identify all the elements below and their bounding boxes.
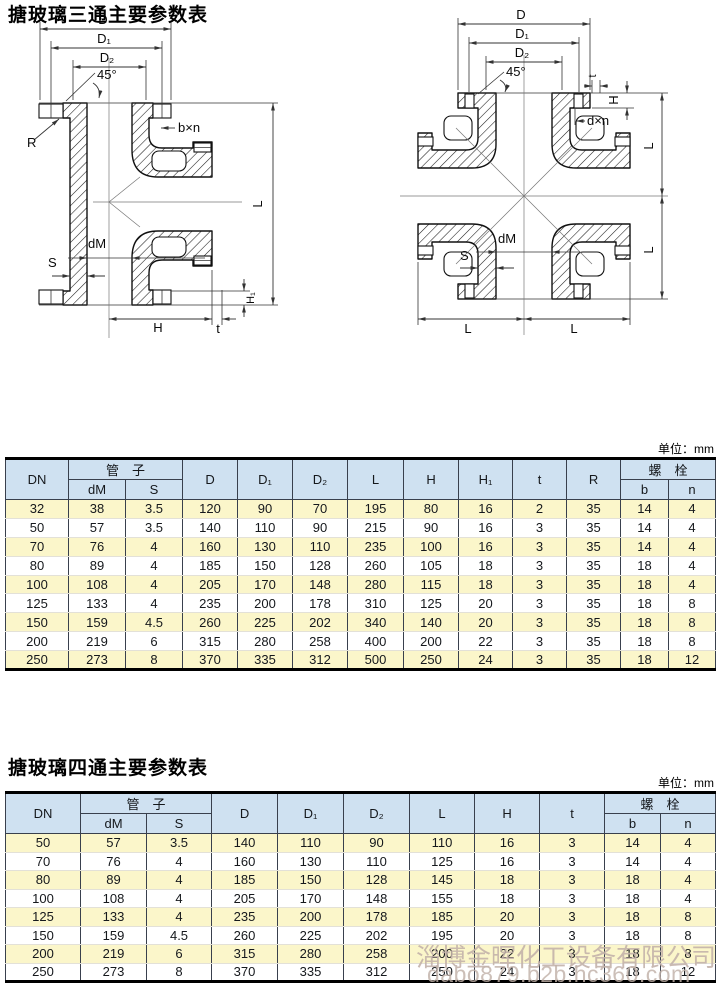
table-cell: 125 bbox=[6, 594, 69, 613]
table-cell: 8 bbox=[661, 908, 716, 927]
table-cell: 18 bbox=[621, 556, 669, 575]
table-cell: 185 bbox=[183, 556, 238, 575]
table-cell: 280 bbox=[238, 632, 293, 651]
table-cell: 273 bbox=[81, 963, 147, 982]
table-cell: 170 bbox=[238, 575, 293, 594]
table-cell: 4 bbox=[126, 537, 183, 556]
table-cell: 315 bbox=[183, 632, 238, 651]
table-cell: 4 bbox=[669, 500, 716, 519]
table-cell: 89 bbox=[69, 556, 126, 575]
column-header-dn: DN bbox=[6, 793, 81, 834]
table-cell: 90 bbox=[344, 834, 410, 853]
table-cell: 4 bbox=[661, 852, 716, 871]
table-cell: 8 bbox=[147, 963, 212, 982]
column-header-d2: D₂ bbox=[344, 793, 410, 834]
table-cell: 155 bbox=[410, 889, 475, 908]
table-cell: 35 bbox=[567, 556, 621, 575]
table-row: 8089418515012826010518335184 bbox=[6, 556, 716, 575]
table-cell: 18 bbox=[605, 908, 661, 927]
table-cell: 280 bbox=[278, 945, 344, 964]
table-cell: 4.5 bbox=[126, 613, 183, 632]
column-header-dm: dM bbox=[69, 480, 126, 500]
table-cell: 200 bbox=[238, 594, 293, 613]
table-cell: 4 bbox=[147, 889, 212, 908]
column-header-pipe-group: 管 子 bbox=[81, 793, 212, 814]
table-cell: 4 bbox=[669, 537, 716, 556]
table-cell: 205 bbox=[183, 575, 238, 594]
table-cell: 8 bbox=[669, 594, 716, 613]
table-cell: 202 bbox=[293, 613, 348, 632]
table-cell: 90 bbox=[404, 518, 459, 537]
table-cell: 3 bbox=[540, 908, 605, 927]
table-cell: 76 bbox=[69, 537, 126, 556]
table-cell: 235 bbox=[183, 594, 238, 613]
table-cell: 70 bbox=[6, 537, 69, 556]
table-cell: 3 bbox=[513, 651, 567, 670]
table-cell: 250 bbox=[6, 963, 81, 982]
tee-label-angle: 45° bbox=[97, 67, 117, 82]
table-cell: 50 bbox=[6, 518, 69, 537]
column-header-n: n bbox=[661, 814, 716, 834]
table-cell: 400 bbox=[348, 632, 404, 651]
cross-label-L-right-top: L bbox=[641, 142, 656, 149]
tee-table-title: 搪玻璃三通主要参数表 bbox=[8, 0, 208, 27]
table-cell: 258 bbox=[293, 632, 348, 651]
cross-label-L-bottom-right: L bbox=[570, 321, 577, 336]
table-cell: 100 bbox=[6, 889, 81, 908]
table-cell: 22 bbox=[459, 632, 513, 651]
column-header-d: D bbox=[212, 793, 278, 834]
table-cell: 4 bbox=[147, 871, 212, 890]
table-cell: 14 bbox=[605, 834, 661, 853]
table-cell: 90 bbox=[293, 518, 348, 537]
table-cell: 120 bbox=[183, 500, 238, 519]
table-cell: 235 bbox=[212, 908, 278, 927]
tee-label-dM: dM bbox=[88, 236, 106, 251]
tee-label-D1: D₁ bbox=[97, 31, 111, 46]
table-cell: 3 bbox=[513, 632, 567, 651]
table-cell: 312 bbox=[344, 963, 410, 982]
table-cell: 335 bbox=[238, 651, 293, 670]
table-cell: 4 bbox=[126, 556, 183, 575]
table-cell: 14 bbox=[621, 500, 669, 519]
column-header-h: H bbox=[475, 793, 540, 834]
column-header-h1: H₁ bbox=[459, 459, 513, 500]
table-cell: 260 bbox=[348, 556, 404, 575]
table-cell: 219 bbox=[69, 632, 126, 651]
table-cell: 20 bbox=[475, 908, 540, 927]
table-cell: 3 bbox=[513, 613, 567, 632]
table-cell: 159 bbox=[69, 613, 126, 632]
table-cell: 14 bbox=[605, 852, 661, 871]
table-cell: 100 bbox=[404, 537, 459, 556]
tee-label-S: S bbox=[48, 255, 57, 270]
table-cell: 3.5 bbox=[126, 500, 183, 519]
column-header-l: L bbox=[410, 793, 475, 834]
table-cell: 125 bbox=[404, 594, 459, 613]
table-cell: 18 bbox=[605, 871, 661, 890]
table-cell: 185 bbox=[410, 908, 475, 927]
table-row: 200219631528025840020022335188 bbox=[6, 632, 716, 651]
table-cell: 219 bbox=[81, 945, 147, 964]
column-header-r: R bbox=[567, 459, 621, 500]
table-cell: 24 bbox=[459, 651, 513, 670]
column-header-bolt-group: 螺 栓 bbox=[605, 793, 716, 814]
column-header-bolt-group: 螺 栓 bbox=[621, 459, 716, 480]
cross-label-H: H bbox=[606, 95, 621, 104]
table-cell: 110 bbox=[344, 852, 410, 871]
cross-label-D: D bbox=[516, 7, 525, 22]
tee-parameters-table: DN 管 子 D D₁ D₂ L H H₁ t R 螺 栓 dM S b n 3… bbox=[5, 457, 716, 671]
table-cell: 4.5 bbox=[147, 926, 212, 945]
table-cell: 335 bbox=[278, 963, 344, 982]
table-cell: 16 bbox=[459, 518, 513, 537]
table-cell: 150 bbox=[6, 926, 81, 945]
tee-label-R: R bbox=[27, 135, 36, 150]
table-cell: 133 bbox=[81, 908, 147, 927]
table-cell: 70 bbox=[6, 852, 81, 871]
table-cell: 70 bbox=[293, 500, 348, 519]
table-cell: 128 bbox=[344, 871, 410, 890]
cross-label-L-bottom-left: L bbox=[464, 321, 471, 336]
table-cell: 8 bbox=[669, 632, 716, 651]
watermark-site-text: dabo879.b2b.hc360.com bbox=[427, 961, 691, 988]
table-cell: 170 bbox=[278, 889, 344, 908]
table-cell: 4 bbox=[126, 575, 183, 594]
tee-label-H1: H₁ bbox=[245, 292, 257, 304]
cross-table-title: 搪玻璃四通主要参数表 bbox=[8, 753, 208, 780]
table-cell: 12 bbox=[669, 651, 716, 670]
table-cell: 133 bbox=[69, 594, 126, 613]
table-cell: 80 bbox=[6, 556, 69, 575]
column-header-dn: DN bbox=[6, 459, 69, 500]
table-cell: 108 bbox=[81, 889, 147, 908]
table-cell: 200 bbox=[6, 945, 81, 964]
table-cell: 3 bbox=[540, 834, 605, 853]
table-row: 125133423520017831012520335188 bbox=[6, 594, 716, 613]
table-cell: 130 bbox=[238, 537, 293, 556]
column-header-t: t bbox=[513, 459, 567, 500]
technical-drawings: D D₁ D₂ 45° R b×n L dM bbox=[0, 0, 720, 352]
table-cell: 315 bbox=[212, 945, 278, 964]
table-row: 80894185150128145183184 bbox=[6, 871, 716, 890]
table-cell: 4 bbox=[669, 575, 716, 594]
table-cell: 260 bbox=[212, 926, 278, 945]
table-cell: 6 bbox=[126, 632, 183, 651]
tee-label-bxn: b×n bbox=[178, 120, 200, 135]
table-row: 70764160130110125163144 bbox=[6, 852, 716, 871]
table-cell: 35 bbox=[567, 651, 621, 670]
column-header-d1: D₁ bbox=[238, 459, 293, 500]
spec-sheet-page: D D₁ D₂ 45° R b×n L dM bbox=[0, 0, 720, 993]
table-cell: 108 bbox=[69, 575, 126, 594]
column-header-d2: D₂ bbox=[293, 459, 348, 500]
table-cell: 200 bbox=[278, 908, 344, 927]
table-cell: 2 bbox=[513, 500, 567, 519]
table-cell: 4 bbox=[669, 556, 716, 575]
column-header-pipe-group: 管 子 bbox=[69, 459, 183, 480]
table-cell: 215 bbox=[348, 518, 404, 537]
column-header-dm: dM bbox=[81, 814, 147, 834]
table-cell: 4 bbox=[669, 518, 716, 537]
tee-label-D2: D₂ bbox=[100, 50, 114, 65]
table-cell: 150 bbox=[6, 613, 69, 632]
table-cell: 35 bbox=[567, 537, 621, 556]
table-row: 32383.512090701958016235144 bbox=[6, 500, 716, 519]
table-cell: 16 bbox=[475, 834, 540, 853]
table-cell: 110 bbox=[410, 834, 475, 853]
cross-label-angle: 45° bbox=[506, 64, 526, 79]
table-cell: 150 bbox=[238, 556, 293, 575]
table-cell: 200 bbox=[404, 632, 459, 651]
table-cell: 340 bbox=[348, 613, 404, 632]
table-cell: 4 bbox=[661, 871, 716, 890]
tee-label-L: L bbox=[250, 200, 265, 207]
table-cell: 35 bbox=[567, 575, 621, 594]
column-header-s: S bbox=[147, 814, 212, 834]
table-cell: 89 bbox=[81, 871, 147, 890]
table-cell: 178 bbox=[344, 908, 410, 927]
column-header-s: S bbox=[126, 480, 183, 500]
table-cell: 50 bbox=[6, 834, 81, 853]
table-cell: 80 bbox=[6, 871, 81, 890]
table-cell: 110 bbox=[278, 834, 344, 853]
table-cell: 140 bbox=[183, 518, 238, 537]
table-cell: 57 bbox=[69, 518, 126, 537]
table-cell: 159 bbox=[81, 926, 147, 945]
table-cell: 3 bbox=[513, 518, 567, 537]
table-cell: 250 bbox=[404, 651, 459, 670]
table-cell: 90 bbox=[238, 500, 293, 519]
table-cell: 8 bbox=[669, 613, 716, 632]
table-cell: 148 bbox=[293, 575, 348, 594]
cross-table-unit-label: 单位：mm bbox=[658, 774, 714, 791]
table-cell: 4 bbox=[661, 834, 716, 853]
table-cell: 35 bbox=[567, 594, 621, 613]
table-cell: 105 bbox=[404, 556, 459, 575]
table-cell: 35 bbox=[567, 613, 621, 632]
table-cell: 178 bbox=[293, 594, 348, 613]
table-cell: 185 bbox=[212, 871, 278, 890]
table-cell: 32 bbox=[6, 500, 69, 519]
table-cell: 14 bbox=[621, 537, 669, 556]
table-cell: 6 bbox=[147, 945, 212, 964]
table-cell: 16 bbox=[459, 537, 513, 556]
table-cell: 4 bbox=[147, 852, 212, 871]
table-cell: 3 bbox=[513, 537, 567, 556]
table-cell: 16 bbox=[475, 852, 540, 871]
table-cell: 500 bbox=[348, 651, 404, 670]
table-cell: 125 bbox=[410, 852, 475, 871]
table-cell: 110 bbox=[238, 518, 293, 537]
column-header-d1: D₁ bbox=[278, 793, 344, 834]
table-cell: 235 bbox=[348, 537, 404, 556]
table-cell: 18 bbox=[459, 556, 513, 575]
table-cell: 280 bbox=[348, 575, 404, 594]
tee-label-H: H bbox=[153, 320, 162, 335]
table-cell: 18 bbox=[621, 594, 669, 613]
tee-table-unit-label: 单位：mm bbox=[658, 440, 714, 457]
cross-label-S: S bbox=[460, 248, 469, 263]
table-cell: 140 bbox=[212, 834, 278, 853]
table-cell: 3 bbox=[513, 575, 567, 594]
table-cell: 18 bbox=[475, 889, 540, 908]
table-cell: 128 bbox=[293, 556, 348, 575]
table-cell: 76 bbox=[81, 852, 147, 871]
table-cell: 3.5 bbox=[126, 518, 183, 537]
table-cell: 258 bbox=[344, 945, 410, 964]
column-header-t: t bbox=[540, 793, 605, 834]
table-cell: 3 bbox=[513, 556, 567, 575]
table-cell: 160 bbox=[212, 852, 278, 871]
cross-label-D2: D₂ bbox=[515, 45, 529, 60]
table-cell: 80 bbox=[404, 500, 459, 519]
table-cell: 18 bbox=[621, 632, 669, 651]
table-cell: 4 bbox=[126, 594, 183, 613]
column-header-n: n bbox=[669, 480, 716, 500]
cross-label-L-right-bottom: L bbox=[641, 246, 656, 253]
cross-label-dxn: d×n bbox=[587, 113, 609, 128]
cross-label-dM: dM bbox=[498, 231, 516, 246]
table-cell: 140 bbox=[404, 613, 459, 632]
table-cell: 225 bbox=[278, 926, 344, 945]
table-cell: 35 bbox=[567, 500, 621, 519]
table-cell: 57 bbox=[81, 834, 147, 853]
table-cell: 115 bbox=[404, 575, 459, 594]
tee-label-t: t bbox=[216, 321, 220, 336]
table-cell: 18 bbox=[605, 889, 661, 908]
table-cell: 195 bbox=[348, 500, 404, 519]
tee-diagram: D D₁ D₂ 45° R b×n L dM bbox=[27, 12, 278, 338]
table-cell: 4 bbox=[661, 889, 716, 908]
column-header-b: b bbox=[621, 480, 669, 500]
table-cell: 225 bbox=[238, 613, 293, 632]
column-header-l: L bbox=[348, 459, 404, 500]
table-row: 1251334235200178185203188 bbox=[6, 908, 716, 927]
table-cell: 18 bbox=[475, 871, 540, 890]
table-cell: 312 bbox=[293, 651, 348, 670]
table-cell: 18 bbox=[459, 575, 513, 594]
table-cell: 250 bbox=[6, 651, 69, 670]
table-cell: 370 bbox=[212, 963, 278, 982]
table-cell: 370 bbox=[183, 651, 238, 670]
table-row: 100108420517014828011518335184 bbox=[6, 575, 716, 594]
table-cell: 20 bbox=[459, 613, 513, 632]
table-cell: 202 bbox=[344, 926, 410, 945]
table-cell: 3.5 bbox=[147, 834, 212, 853]
table-cell: 100 bbox=[6, 575, 69, 594]
table-row: 7076416013011023510016335144 bbox=[6, 537, 716, 556]
column-header-b: b bbox=[605, 814, 661, 834]
table-cell: 260 bbox=[183, 613, 238, 632]
table-cell: 18 bbox=[621, 613, 669, 632]
table-cell: 16 bbox=[459, 500, 513, 519]
table-cell: 160 bbox=[183, 537, 238, 556]
table-cell: 3 bbox=[540, 852, 605, 871]
table-cell: 200 bbox=[6, 632, 69, 651]
table-cell: 130 bbox=[278, 852, 344, 871]
table-cell: 4 bbox=[147, 908, 212, 927]
table-cell: 3 bbox=[513, 594, 567, 613]
table-cell: 273 bbox=[69, 651, 126, 670]
table-cell: 310 bbox=[348, 594, 404, 613]
table-cell: 205 bbox=[212, 889, 278, 908]
table-row: 50573.514011090110163144 bbox=[6, 834, 716, 853]
column-header-h: H bbox=[404, 459, 459, 500]
table-cell: 35 bbox=[567, 632, 621, 651]
table-row: 2502738370335312500250243351812 bbox=[6, 651, 716, 670]
table-cell: 18 bbox=[621, 651, 669, 670]
column-header-d: D bbox=[183, 459, 238, 500]
table-cell: 150 bbox=[278, 871, 344, 890]
table-cell: 145 bbox=[410, 871, 475, 890]
cross-label-t: t bbox=[587, 74, 599, 77]
table-cell: 38 bbox=[69, 500, 126, 519]
table-cell: 20 bbox=[459, 594, 513, 613]
table-cell: 8 bbox=[126, 651, 183, 670]
table-cell: 148 bbox=[344, 889, 410, 908]
table-cell: 3 bbox=[540, 889, 605, 908]
table-cell: 35 bbox=[567, 518, 621, 537]
table-cell: 110 bbox=[293, 537, 348, 556]
cross-diagram: D D₁ D₂ 45° t H d×n bbox=[400, 7, 668, 336]
table-cell: 125 bbox=[6, 908, 81, 927]
table-row: 1001084205170148155183184 bbox=[6, 889, 716, 908]
cross-label-D1: D₁ bbox=[515, 26, 529, 41]
table-row: 1501594.526022520234014020335188 bbox=[6, 613, 716, 632]
table-row: 50573.5140110902159016335144 bbox=[6, 518, 716, 537]
table-cell: 18 bbox=[621, 575, 669, 594]
table-cell: 14 bbox=[621, 518, 669, 537]
table-cell: 3 bbox=[540, 871, 605, 890]
